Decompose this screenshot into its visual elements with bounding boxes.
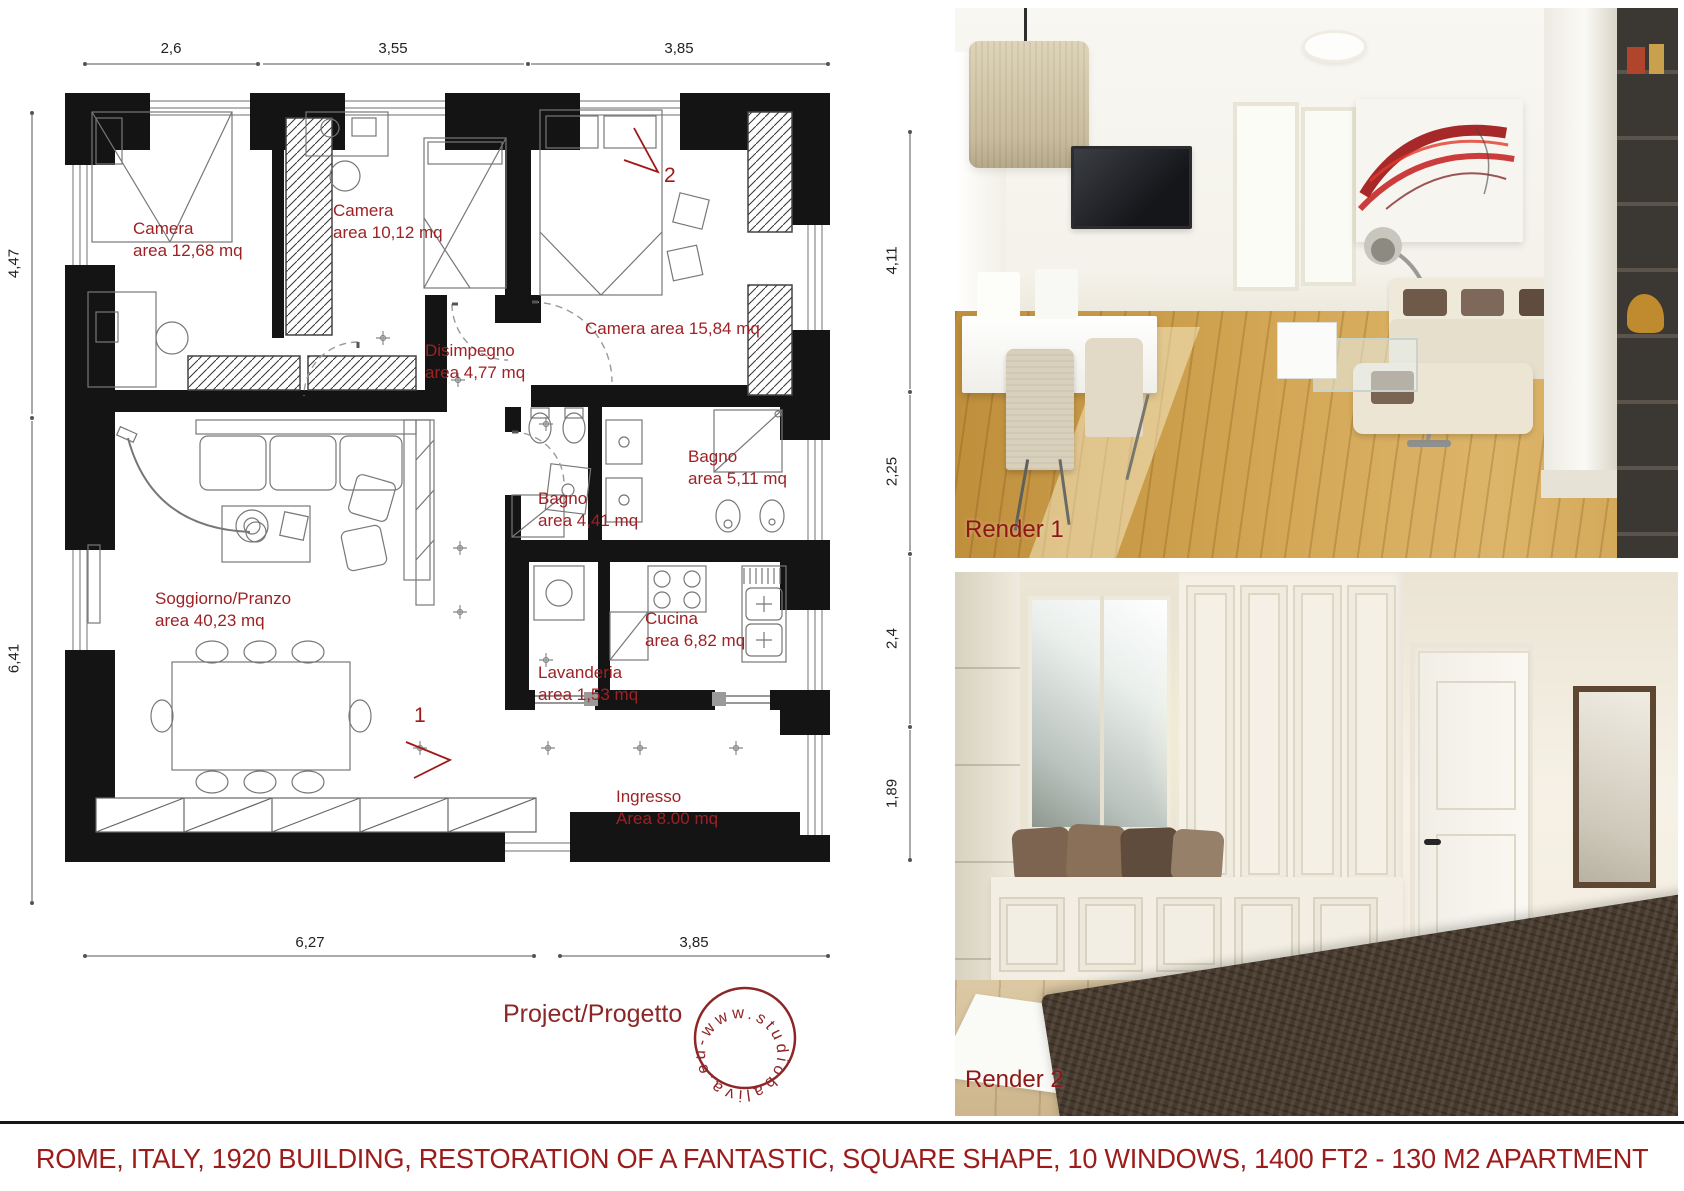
room-label-camera-1: Camera area 12,68 mq — [133, 218, 243, 262]
svg-text:www.studiobaliva.eu-: www.studiobaliva.eu- — [691, 1004, 792, 1104]
dining-chair-back-2 — [1035, 269, 1078, 319]
dining-chair-2 — [1085, 338, 1143, 437]
room-label-disimpegno: Disimpegno area 4,77 mq — [425, 340, 525, 384]
door-panel-top — [1436, 681, 1516, 810]
dim-top-1: 2,6 — [136, 40, 206, 57]
room-area: area 6,82 mq — [645, 630, 745, 652]
view-marker-1: 1 — [414, 704, 426, 727]
studio-stamp: www.studiobaliva.eu- — [691, 988, 795, 1104]
wardrobe-door-panel-4 — [1347, 585, 1396, 883]
mirror — [1573, 686, 1656, 887]
radiators — [96, 798, 536, 832]
dim-bottom-1: 6,27 — [275, 934, 345, 951]
caption-text: ROME, ITALY, 1920 BUILDING, RESTORATION … — [36, 1143, 1648, 1175]
floor-plan-drawing: 2 1 www.studiobaliva.eu- — [0, 0, 950, 1115]
room-area: Area 8.00 mq — [616, 808, 718, 830]
dining-chair-1 — [1006, 349, 1075, 470]
room-area: area 4,41 mq — [538, 510, 638, 532]
dim-right-3: 2,4 — [884, 604, 901, 674]
bookshelf — [1617, 8, 1678, 558]
room-name: Cucina — [645, 608, 745, 630]
room-name: Camera — [133, 218, 243, 240]
dim-bottom-2: 3,85 — [659, 934, 729, 951]
caption-bar: ROME, ITALY, 1920 BUILDING, RESTORATION … — [0, 1121, 1684, 1191]
base-panel-1 — [999, 897, 1065, 972]
dim-right-2: 2,25 — [884, 437, 901, 507]
room-area: area 12,68 mq — [133, 240, 243, 262]
render-2-photo: Render 2 — [955, 572, 1678, 1116]
base-panel-2 — [1078, 897, 1144, 972]
room-label-camera-2: Camera area 10,12 mq — [333, 200, 443, 244]
room-name: Camera area 15,84 mq — [585, 318, 760, 340]
dim-top-2: 3,55 — [358, 40, 428, 57]
room-area: area 40,23 mq — [155, 610, 291, 632]
white-cube-table — [1277, 322, 1337, 379]
wardrobe-door-panel-3 — [1293, 585, 1342, 883]
project-label: Project/Progetto — [503, 1000, 682, 1029]
dim-left-1: 4,47 — [6, 229, 23, 299]
base-panel-3 — [1156, 897, 1222, 972]
room-name: Camera — [333, 200, 443, 222]
stamp-textpath: www.studiobaliva.eu- — [691, 1004, 792, 1104]
sofa-cushion-1 — [1403, 289, 1446, 317]
window-mullion — [1100, 596, 1104, 830]
room-area: area 5,11 mq — [688, 468, 787, 490]
seat-cushion-1 — [1011, 826, 1072, 884]
room-name: Soggiorno/Pranzo — [155, 588, 291, 610]
room-label-ingresso: Ingresso Area 8.00 mq — [616, 786, 718, 830]
pillar — [1544, 8, 1616, 487]
pillar-base — [1541, 470, 1621, 498]
seat-cushion-2 — [1066, 823, 1127, 883]
dim-right-4: 1,89 — [884, 759, 901, 829]
room-name: Lavanderia — [538, 662, 638, 684]
room-area: area 10,12 mq — [333, 222, 443, 244]
seat-cushion-4 — [1170, 829, 1224, 884]
dining-chair-back-1 — [977, 272, 1020, 322]
render-1-photo: Render 1 — [955, 8, 1678, 558]
door-handle — [1424, 839, 1441, 846]
book-red — [1627, 47, 1645, 75]
room-area: area 4,77 mq — [425, 362, 525, 384]
render-2-label: Render 2 — [965, 1066, 1064, 1094]
room-label-bagno-small: Bagno area 4,41 mq — [538, 488, 638, 532]
dim-top-3: 3,85 — [644, 40, 714, 57]
room-label-cucina: Cucina area 6,82 mq — [645, 608, 745, 652]
room-area: area 1,53 mq — [538, 684, 638, 706]
book-gold — [1649, 44, 1663, 74]
room-label-soggiorno: Soggiorno/Pranzo area 40,23 mq — [155, 588, 291, 632]
wardrobe-door-panel-2 — [1240, 585, 1289, 883]
view-marker-2: 2 — [664, 164, 676, 187]
render-1-label: Render 1 — [965, 516, 1064, 544]
room-label-lavanderia: Lavanderia area 1,53 mq — [538, 662, 638, 706]
room-name: Bagno — [688, 446, 787, 468]
sofa-cushion-2 — [1461, 289, 1504, 317]
room-label-camera-3: Camera area 15,84 mq — [585, 318, 760, 340]
room-name: Disimpegno — [425, 340, 525, 362]
room-name: Bagno — [538, 488, 638, 510]
room-name: Ingresso — [616, 786, 718, 808]
room-label-bagno-big: Bagno area 5,11 mq — [688, 446, 787, 490]
dim-left-2: 6,41 — [6, 624, 23, 694]
dim-right-1: 4,11 — [884, 226, 901, 296]
presentation-sheet: 2 1 www.studiobaliva.eu- 2,6 3,55 3,85 6… — [0, 0, 1684, 1191]
